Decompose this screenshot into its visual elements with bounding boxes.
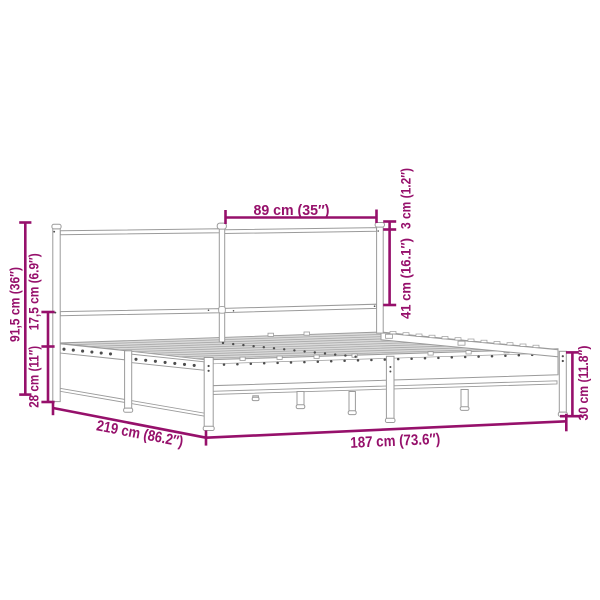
svg-text:187 cm (73.6″): 187 cm (73.6″) [350, 431, 441, 452]
svg-text:30 cm (11.8″): 30 cm (11.8″) [576, 346, 591, 421]
svg-text:28 cm (11″): 28 cm (11″) [27, 346, 42, 408]
svg-text:3 cm (1.2″): 3 cm (1.2″) [399, 168, 414, 229]
svg-text:17,5 cm (6.9″): 17,5 cm (6.9″) [27, 253, 42, 330]
svg-text:89 cm (35″): 89 cm (35″) [254, 202, 330, 219]
svg-text:219 cm (86.2″): 219 cm (86.2″) [95, 417, 185, 450]
svg-text:41 cm (16.1″): 41 cm (16.1″) [399, 238, 414, 319]
svg-text:91,5 cm (36″): 91,5 cm (36″) [7, 267, 22, 342]
